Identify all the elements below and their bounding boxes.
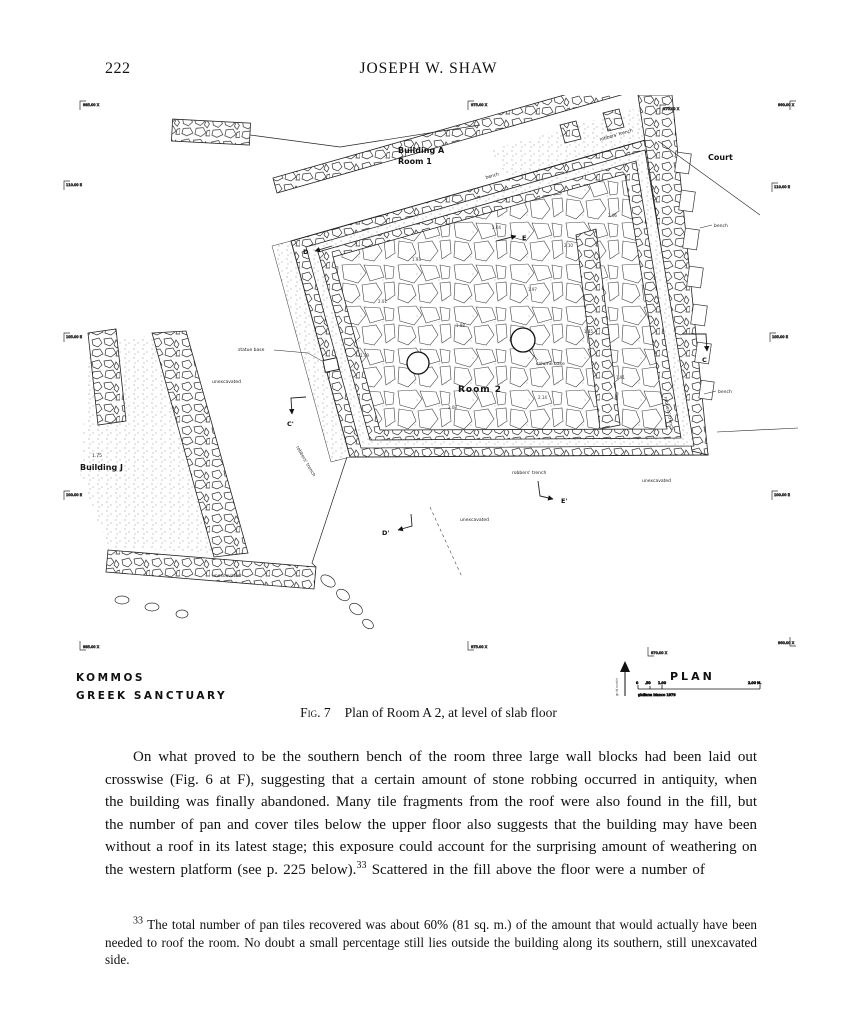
field-annotation-line [430,507,462,577]
label-unexcavated-2: unexcavated [642,478,671,484]
svg-text:100.00 E: 100.00 E [774,493,791,497]
footnote-text: The total number of pan tiles recovered … [105,917,757,967]
section-e: E [522,234,526,242]
label-room-2: Room 2 [458,385,502,395]
label-column-base: column base [536,361,565,367]
figure-caption-label: Fig. 7 [300,705,331,720]
section-d-prime: D' [382,529,389,537]
svg-text:2.08: 2.08 [448,405,457,410]
svg-text:975.00 X: 975.00 X [471,103,488,107]
grid-tick: 960.00 X [778,101,796,110]
label-robbers-trench-4: robbers' trench [294,445,316,478]
grid-tick: 105.00 E [770,333,789,342]
label-room-1: Room 1 [398,157,432,166]
label-bench-1: bench [485,171,500,181]
statue-base [323,358,339,373]
grid-tick: 985.00 X [80,641,100,650]
footnote-reference: 33 [356,860,366,871]
svg-text:985.00 X: 985.00 X [83,103,100,107]
body-text-1: On what proved to be the southern bench … [105,749,757,878]
grid-tick: 105.00 E [64,333,83,342]
legend: KOMMOS GREEK SANCTUARY grid north PLAN 0… [76,661,761,702]
label-bench-3: bench [718,389,732,395]
grid-tick: 960.00 X [778,637,796,646]
svg-text:100.00 E: 100.00 E [66,493,83,497]
grid-tick: 985.00 X [80,101,100,110]
body-paragraph: On what proved to be the southern bench … [105,746,757,881]
svg-text:2.04: 2.04 [492,225,501,230]
svg-text:1.79: 1.79 [360,353,369,358]
plan-svg: 985.00 X 975.00 X 970.00 X 960.00 X 110.… [60,95,800,710]
svg-text:105.00 E: 105.00 E [66,335,83,339]
running-head: JOSEPH W. SHAW [0,60,857,78]
svg-text:.50: .50 [645,681,651,685]
svg-text:110.00 E: 110.00 E [774,185,791,189]
label-building-j: Building J [80,463,123,472]
grid-tick: 975.00 X [468,641,488,650]
svg-text:970.00 X: 970.00 X [651,651,668,655]
label-statue-base: statue base [238,347,265,353]
scale-bar: 0 .50 1.00 2.00 M. giuliana bianco 1979 [636,681,761,697]
label-bj-elev: 1.75 [92,453,102,459]
label-robbers-trench-3: robbers' trench [512,470,546,476]
body-text-2: Scattered in the fill above the floor we… [366,862,704,878]
grid-tick: 970.00 X [648,647,668,656]
svg-text:1.88: 1.88 [456,323,465,328]
section-c: C [702,356,707,364]
label-unexcavated-3: unexcavated [460,517,489,523]
grid-tick: 100.00 E [64,491,83,500]
svg-text:960.00 X: 960.00 X [778,641,795,645]
svg-text:2.00 M.: 2.00 M. [748,681,761,685]
footnote-marker: 33 [133,916,143,927]
section-e-prime: E' [561,497,567,505]
svg-text:2.14: 2.14 [538,395,547,400]
journal-page: 222 JOSEPH W. SHAW [0,0,857,1024]
site-subtitle: GREEK SANCTUARY [76,690,227,702]
section-d: D [303,248,309,256]
svg-text:975.00 X: 975.00 X [471,645,488,649]
svg-text:1.85: 1.85 [584,329,593,334]
svg-text:1.91: 1.91 [616,375,625,380]
figure-caption-text: Plan of Room A 2, at level of slab floor [345,705,557,720]
column-base-west [407,352,429,374]
svg-text:985.00 X: 985.00 X [83,645,100,649]
svg-text:2.06: 2.06 [608,213,617,218]
label-bench-2: bench [714,223,728,229]
grid-tick: 110.00 E [64,181,83,190]
north-arrow-label: grid north [615,678,619,696]
svg-text:2.01: 2.01 [378,299,387,304]
building-a-room2 [272,95,708,462]
grid-tick: 110.00 E [772,183,791,192]
svg-text:1.97: 1.97 [528,287,537,292]
svg-text:105.00 E: 105.00 E [772,335,789,339]
north-arrow: grid north [615,661,630,696]
grid-tick: 100.00 E [772,491,791,500]
svg-text:970.00 X: 970.00 X [663,107,680,111]
label-building-a: Building A [398,146,445,155]
svg-text:1.00: 1.00 [658,681,667,685]
label-court: Court [708,153,733,162]
figure-caption: Fig. 7Plan of Room A 2, at level of slab… [0,705,857,721]
figure-7-plan: 985.00 X 975.00 X 970.00 X 960.00 X 110.… [60,95,800,710]
svg-text:110.00 E: 110.00 E [66,183,83,187]
drafter-credit: giuliana bianco 1979 [638,693,676,697]
label-unexcavated-4: unexcavated [212,573,241,579]
svg-text:960.00 X: 960.00 X [778,103,795,107]
svg-text:2.10: 2.10 [564,243,573,248]
grid-tick: 975.00 X [468,101,488,110]
footnote-33: 33 The total number of pan tiles recover… [105,916,757,969]
svg-text:1.93: 1.93 [412,257,421,262]
label-unexcavated-1: unexcavated [212,379,241,385]
plan-title: PLAN [670,670,715,683]
site-name: KOMMOS [76,672,145,684]
section-c-prime: C' [287,420,294,428]
svg-text:0: 0 [636,681,639,685]
column-base-east [511,328,535,352]
